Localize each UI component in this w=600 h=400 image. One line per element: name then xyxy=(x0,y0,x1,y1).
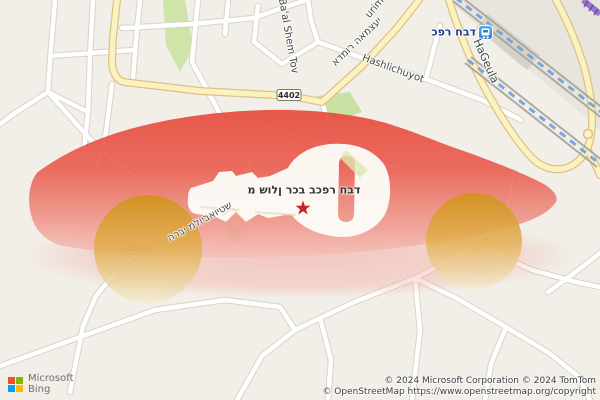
map-canvas[interactable]: 4402 4402 xyxy=(0,0,600,400)
wheel-overlay-left xyxy=(94,195,202,303)
bing-logo[interactable]: Microsoft Bing xyxy=(8,373,74,395)
map-attribution: © 2024 Microsoft Corporation © 2024 TomT… xyxy=(322,376,596,398)
attribution-line-1: © 2024 Microsoft Corporation © 2024 TomT… xyxy=(322,376,596,387)
attribution-line-2-osm-link[interactable]: © OpenStreetMap https://www.openstreetma… xyxy=(322,387,596,398)
branding-bing: Bing xyxy=(28,384,74,395)
wheel-overlay-right xyxy=(426,193,522,289)
car-search-overlay xyxy=(0,0,600,400)
microsoft-logo-icon xyxy=(8,377,23,392)
branding-microsoft: Microsoft xyxy=(28,373,74,384)
